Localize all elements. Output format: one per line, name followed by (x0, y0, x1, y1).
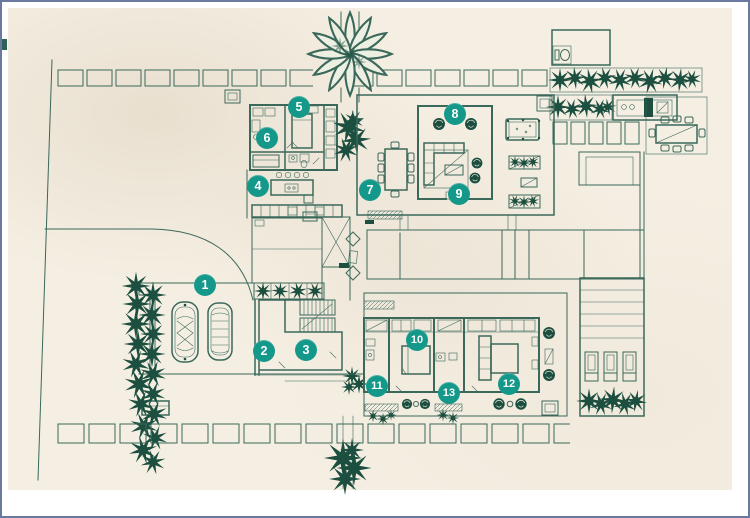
carport (139, 283, 364, 415)
marker-10[interactable]: 10 (406, 329, 428, 351)
marker-11[interactable]: 11 (366, 375, 388, 397)
hedge-west (118, 272, 173, 478)
marker-9[interactable]: 9 (448, 183, 470, 205)
entry-rooms (254, 278, 369, 395)
marker-8[interactable]: 8 (444, 103, 466, 125)
marker-1[interactable]: 1 (194, 274, 216, 296)
paver-squares-east (553, 122, 639, 144)
marker-13[interactable]: 13 (438, 382, 460, 404)
marker-12[interactable]: 12 (498, 373, 520, 395)
marker-5[interactable]: 5 (288, 96, 310, 118)
bedroom-wing-south (364, 293, 567, 425)
outdoor-kitchen (613, 95, 677, 120)
marker-2[interactable]: 2 (253, 340, 275, 362)
courtyard-tree (328, 106, 377, 166)
car-2 (208, 303, 232, 360)
paver-path-top (57, 12, 550, 103)
hedge-rows-northeast (546, 62, 704, 123)
property-boundary (38, 60, 253, 480)
car-1 (172, 302, 198, 362)
deck-east (576, 278, 649, 420)
guest-building (552, 30, 610, 65)
terrace (367, 230, 644, 279)
marker-3[interactable]: 3 (295, 339, 317, 361)
floor-plan-canvas: 1 2 3 4 5 6 7 8 9 10 11 12 13 (0, 0, 750, 518)
marker-4[interactable]: 4 (247, 175, 269, 197)
marker-6[interactable]: 6 (256, 127, 278, 149)
marker-7[interactable]: 7 (359, 179, 381, 201)
floor-plan-drawing (2, 2, 750, 518)
garden-box-east (579, 152, 644, 278)
utility-corridor (252, 212, 516, 300)
